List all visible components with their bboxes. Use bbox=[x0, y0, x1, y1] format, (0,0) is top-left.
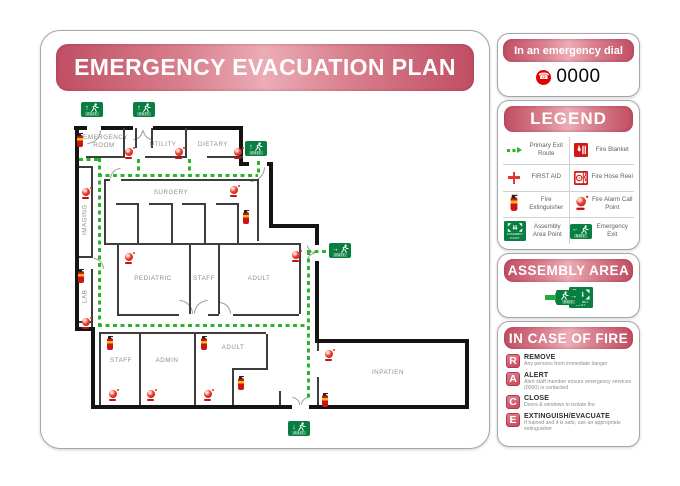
fire-extinguisher-icon bbox=[504, 198, 524, 210]
fire-extinguisher-icon bbox=[322, 395, 328, 407]
exit-sign-label: EXIT bbox=[137, 112, 150, 116]
down-arrow-icon: ↓ bbox=[292, 423, 296, 431]
evacuation-route-segment bbox=[79, 158, 99, 161]
interior-wall bbox=[116, 203, 139, 205]
evacuation-route-segment bbox=[188, 159, 191, 174]
fire-alarm-icon bbox=[81, 318, 90, 330]
wall bbox=[239, 126, 243, 166]
interior-wall bbox=[135, 128, 137, 148]
wall bbox=[269, 224, 319, 228]
first-aid-icon bbox=[504, 172, 524, 184]
phone-icon: ☎ bbox=[536, 70, 551, 85]
interior-wall bbox=[194, 334, 196, 405]
interior-wall bbox=[149, 203, 173, 205]
fire-alarm-icon bbox=[203, 390, 212, 402]
interior-wall bbox=[208, 314, 219, 316]
legend-item: Fire Extinguisher bbox=[503, 191, 569, 218]
legend-item: ←EXIT Emergency Exit bbox=[569, 217, 635, 244]
wall bbox=[315, 261, 319, 343]
wall bbox=[239, 162, 249, 166]
room-label: EMERGENCY ROOM bbox=[83, 134, 125, 150]
fire-alarm-icon bbox=[174, 148, 183, 160]
running-man-icon bbox=[90, 103, 99, 112]
legend-item: Fire Alarm Call Point bbox=[569, 191, 635, 218]
door-arc bbox=[194, 300, 208, 314]
up-arrow-icon: ↑ bbox=[137, 104, 141, 112]
exit-sign: ↑ EXIT bbox=[133, 102, 155, 117]
interior-wall bbox=[79, 256, 91, 258]
race-step: R REMOVEAny persons from immediate dange… bbox=[506, 354, 633, 368]
room-label: IMAGING bbox=[80, 196, 90, 244]
interior-wall bbox=[104, 179, 106, 245]
interior-wall bbox=[204, 203, 206, 245]
legend-title: LEGEND bbox=[504, 106, 633, 132]
wall bbox=[91, 405, 292, 409]
fire-alarm-icon bbox=[291, 251, 300, 263]
fire-extinguisher-icon bbox=[201, 338, 207, 350]
room-label: LAB bbox=[80, 279, 90, 313]
interior-wall bbox=[104, 243, 301, 245]
legend-item: ASSEMBLY POINT Assembly Area Point bbox=[503, 217, 569, 244]
room-label: ADULT bbox=[213, 344, 253, 352]
evacuation-route-segment bbox=[257, 161, 260, 174]
assembly-area-row: →EXIT ASSEMBLY POINT bbox=[498, 287, 639, 308]
exit-sign: → EXIT bbox=[329, 243, 351, 258]
door-arc bbox=[292, 397, 300, 405]
emergency-dial-panel: In an emergency dial ☎ 0000 bbox=[497, 33, 640, 97]
fire-hose-reel-icon bbox=[571, 171, 591, 185]
wall bbox=[101, 126, 133, 130]
exit-sign-label: EXIT bbox=[333, 253, 346, 257]
race-step: E EXTINGUISH/EVACUATEIf trained and it i… bbox=[506, 413, 633, 433]
interior-wall bbox=[317, 377, 319, 405]
running-man-icon bbox=[142, 103, 151, 112]
exit-pictogram: → bbox=[331, 244, 349, 253]
in-case-of-fire-title: IN CASE OF FIRE bbox=[504, 327, 633, 349]
wall bbox=[75, 126, 79, 331]
interior-wall bbox=[185, 128, 187, 158]
emergency-exit-icon: →EXIT bbox=[556, 290, 582, 305]
room-label: SURGERY bbox=[151, 189, 191, 197]
interior-wall bbox=[237, 203, 239, 245]
legend-grid: Primary Exit Route Fire Blanket FIRST AI… bbox=[503, 137, 634, 244]
assembly-area-title: ASSEMBLY AREA bbox=[504, 259, 633, 282]
evacuation-route-segment bbox=[307, 250, 331, 253]
floor-plan-panel: EMERGENCY EVACUATION PLAN bbox=[40, 30, 490, 449]
in-case-of-fire-panel: IN CASE OF FIRE R REMOVEAny persons from… bbox=[497, 321, 640, 447]
primary-exit-route-icon bbox=[504, 147, 524, 153]
exit-pictogram: ↑ bbox=[85, 103, 99, 112]
exit-pictogram: ↑ bbox=[137, 103, 151, 112]
interior-wall bbox=[99, 332, 101, 405]
interior-wall bbox=[117, 245, 119, 314]
fire-blanket-icon bbox=[571, 143, 591, 157]
interior-wall bbox=[233, 314, 299, 316]
room-label: PEDIATRIC bbox=[133, 275, 173, 283]
left-arrow-icon: ← bbox=[572, 225, 580, 233]
right-arrow-icon: → bbox=[331, 245, 339, 253]
interior-wall bbox=[99, 332, 266, 334]
phone-glyph: ☎ bbox=[538, 73, 549, 82]
interior-wall bbox=[232, 370, 234, 405]
room-label: STAFF bbox=[184, 275, 224, 283]
legend-panel: LEGEND Primary Exit Route Fire Blanket F… bbox=[497, 100, 640, 250]
emergency-number: 0000 bbox=[556, 66, 600, 88]
exit-sign-label: EXIT bbox=[249, 151, 262, 155]
interior-wall bbox=[137, 203, 139, 245]
wall bbox=[269, 162, 273, 228]
fire-alarm-icon bbox=[571, 198, 591, 210]
interior-wall bbox=[91, 166, 93, 258]
interior-wall bbox=[257, 179, 259, 241]
assembly-area-panel: ASSEMBLY AREA →EXIT ASSEMBLY POINT bbox=[497, 253, 640, 318]
legend-item: Fire Blanket bbox=[569, 137, 635, 164]
up-arrow-icon: ↑ bbox=[85, 104, 89, 112]
interior-wall bbox=[232, 368, 268, 370]
fire-alarm-icon bbox=[108, 390, 117, 402]
interior-wall bbox=[171, 203, 173, 245]
fire-alarm-icon bbox=[81, 188, 90, 200]
interior-wall bbox=[279, 391, 281, 405]
running-man-icon bbox=[297, 422, 306, 431]
running-man-icon bbox=[340, 244, 349, 253]
exit-sign: ↑ EXIT bbox=[245, 141, 267, 156]
interior-wall bbox=[121, 179, 258, 181]
emergency-dial-row: ☎ 0000 bbox=[498, 66, 639, 88]
interior-wall bbox=[317, 343, 319, 351]
exit-pictogram: ↓ bbox=[292, 422, 306, 431]
evacuation-route-segment bbox=[98, 324, 308, 327]
fire-alarm-icon bbox=[146, 390, 155, 402]
evacuation-route-segment bbox=[98, 174, 258, 177]
wall bbox=[153, 126, 243, 130]
interior-wall bbox=[266, 334, 268, 370]
floor-plan: EMERGENCY ROOM UTILITY DIETARY SURGERY I… bbox=[41, 31, 489, 448]
legend-item: Fire Hose Reel bbox=[569, 164, 635, 191]
exit-sign: ↑ EXIT bbox=[81, 102, 103, 117]
fire-alarm-icon bbox=[229, 186, 238, 198]
room-label: ADULT bbox=[239, 275, 279, 283]
fire-extinguisher-icon bbox=[107, 338, 113, 350]
running-man-icon bbox=[254, 142, 263, 151]
evacuation-route-segment bbox=[307, 251, 310, 401]
fire-extinguisher-icon bbox=[78, 271, 84, 283]
fire-extinguisher-icon bbox=[77, 135, 83, 147]
exit-sign-label: EXIT bbox=[292, 431, 305, 435]
fire-alarm-icon bbox=[233, 148, 242, 160]
room-label: INPATIEN bbox=[366, 369, 410, 377]
evacuation-route-segment bbox=[137, 159, 140, 174]
wall bbox=[465, 339, 469, 409]
legend-item: FIRST AID bbox=[503, 164, 569, 191]
race-step: C CLOSEDoors & windows to isolate fire bbox=[506, 395, 633, 409]
exit-sign-label: EXIT bbox=[85, 112, 98, 116]
wall bbox=[309, 405, 469, 409]
interior-wall bbox=[139, 334, 141, 405]
wall bbox=[315, 339, 469, 343]
exit-sign: ↓ EXIT bbox=[288, 421, 310, 436]
race-step: A ALERTAlert staff member ensure emergen… bbox=[506, 372, 633, 392]
fire-alarm-icon bbox=[124, 148, 133, 160]
room-label: ADMIN bbox=[147, 357, 187, 365]
emergency-dial-banner: In an emergency dial bbox=[503, 39, 634, 62]
exit-pictogram: ↑ bbox=[249, 142, 263, 151]
race-letter-badge: R bbox=[506, 354, 520, 368]
right-arrow-icon: → bbox=[570, 292, 578, 300]
interior-wall bbox=[216, 203, 239, 205]
interior-wall bbox=[182, 203, 206, 205]
race-letter-badge: A bbox=[506, 372, 520, 386]
up-arrow-icon: ↑ bbox=[249, 143, 253, 151]
race-letter-badge: E bbox=[506, 413, 520, 427]
race-letter-badge: C bbox=[506, 395, 520, 409]
legend-item: Primary Exit Route bbox=[503, 137, 569, 164]
wall bbox=[315, 224, 319, 245]
interior-wall bbox=[79, 166, 91, 168]
assembly-area-icon: ASSEMBLY POINT bbox=[504, 221, 526, 240]
door-arc bbox=[219, 302, 231, 314]
fire-extinguisher-icon bbox=[243, 212, 249, 224]
fire-alarm-icon bbox=[324, 350, 333, 362]
evacuation-route-segment bbox=[98, 158, 101, 326]
wall bbox=[91, 327, 95, 409]
race-steps: R REMOVEAny persons from immediate dange… bbox=[506, 354, 633, 436]
room-label: STAFF bbox=[101, 357, 141, 365]
fire-extinguisher-icon bbox=[238, 378, 244, 390]
fire-alarm-icon bbox=[124, 253, 133, 265]
room-label: DIETARY bbox=[193, 141, 233, 149]
interior-wall bbox=[117, 314, 179, 316]
